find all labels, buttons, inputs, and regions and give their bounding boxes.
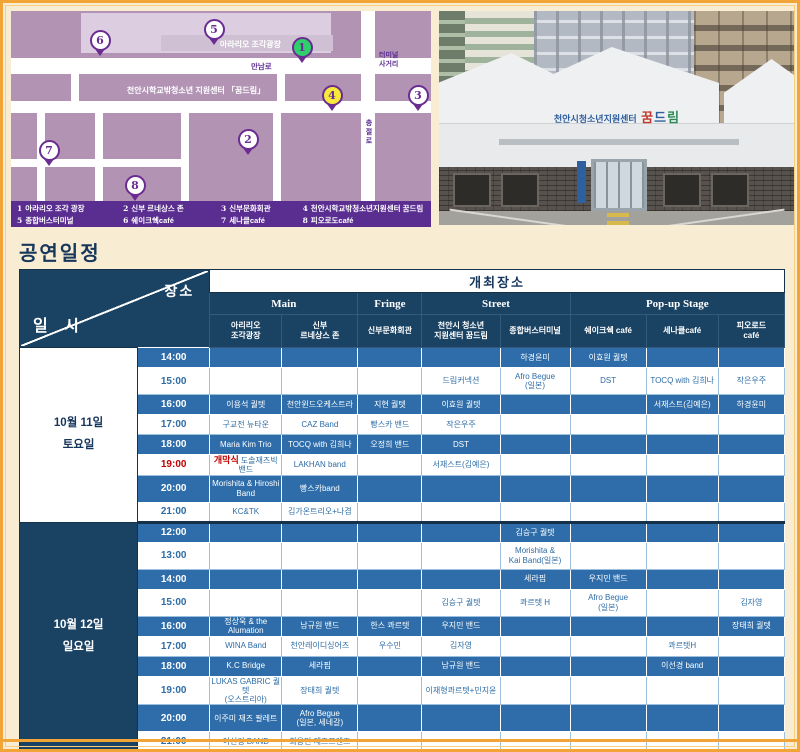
schedule-cell: [718, 502, 784, 522]
table-corner-cell: 장소 일 시: [20, 270, 210, 348]
schedule-cell: 드림커넥션: [422, 368, 500, 395]
map-marker-tail: [95, 49, 105, 61]
schedule-cell: [718, 415, 784, 435]
corner-datetime-label: 일 시: [33, 312, 85, 336]
schedule-cell: [210, 589, 282, 616]
schedule-cell: [500, 415, 570, 435]
schedule-cell: [422, 542, 500, 569]
schedule-cell: 하경윤미: [500, 348, 570, 368]
schedule-cell: [718, 348, 784, 368]
map-marker-number: 1: [292, 37, 313, 58]
schedule-cell: [570, 502, 646, 522]
schedule-cell: [422, 475, 500, 502]
photo-crosswalk: [607, 211, 629, 225]
map-marker-8: 8: [124, 175, 146, 206]
schedule-cell: 우지민 밴드: [570, 569, 646, 589]
time-cell: 20:00: [138, 705, 210, 732]
schedule-cell: 남규원 밴드: [422, 656, 500, 676]
schedule-cell: [646, 542, 718, 569]
map-marker-number: 5: [204, 19, 225, 40]
opening-ceremony-label: 개막식: [214, 455, 239, 465]
time-cell: 19:00: [138, 676, 210, 705]
schedule-cell: [646, 475, 718, 502]
schedule-cell: 오정희 밴드: [358, 435, 422, 455]
time-cell: 18:00: [138, 435, 210, 455]
map-label-mannam-ro: 만남로: [251, 61, 272, 72]
schedule-cell: 정상욱 & the Alumation: [210, 616, 282, 636]
schedule-cell: 김자영: [718, 589, 784, 616]
schedule-cell: [358, 589, 422, 616]
schedule-cell: [570, 636, 646, 656]
schedule-cell: [646, 455, 718, 476]
schedule-cell: [646, 705, 718, 732]
schedule-table: 장소 일 시 개최장소 Main Fringe Street Pop-up St…: [19, 269, 785, 752]
map-marker-tail: [130, 194, 140, 206]
venue-header: 천안시 청소년 지원센터 꿈드림: [422, 315, 500, 348]
schedule-cell: [570, 705, 646, 732]
schedule-cell: [570, 435, 646, 455]
building-sign: 천안시청소년지원센터 꿈드림: [439, 107, 795, 127]
map-marker-tail: [44, 159, 54, 171]
schedule-cell: [210, 569, 282, 589]
group-street: Street: [422, 293, 570, 315]
schedule-cell: [358, 368, 422, 395]
time-cell: 14:00: [138, 348, 210, 368]
schedule-cell: [570, 395, 646, 415]
schedule-cell: [500, 502, 570, 522]
map-label-chungjeol-ro: 충절로: [363, 119, 373, 146]
schedule-cell: CAZ Band: [282, 415, 358, 435]
schedule-cell: Afro Begue (일본, 세네갈): [282, 705, 358, 732]
schedule-cell: 남규원 밴드: [282, 616, 358, 636]
schedule-cell: [570, 415, 646, 435]
schedule-cell: [718, 636, 784, 656]
schedule-cell: [570, 656, 646, 676]
schedule-cell: [358, 502, 422, 522]
schedule-cell: [282, 542, 358, 569]
map-marker-5: 5: [203, 19, 225, 50]
schedule-cell: [646, 569, 718, 589]
schedule-cell: 장태희 퀄텟: [282, 676, 358, 705]
schedule-cell: 콰르텟 H: [500, 589, 570, 616]
map-legend: 1아라리오 조각 광장2신부 르네상스 존3신부문화회관4천안시학교밖청소년지원…: [11, 201, 431, 227]
schedule-cell: [358, 656, 422, 676]
venue-header: 신부 르네상스 존: [282, 315, 358, 348]
schedule-cell: [718, 676, 784, 705]
schedule-cell: [500, 705, 570, 732]
schedule-cell: [210, 348, 282, 368]
time-cell: 12:00: [138, 522, 210, 542]
schedule-cell: TOCQ with 김희나: [282, 435, 358, 455]
schedule-cell: [646, 435, 718, 455]
schedule-cell: 서재스트(김예은): [646, 395, 718, 415]
schedule-cell: [358, 542, 422, 569]
schedule-cell: 한스 콰르텟: [358, 616, 422, 636]
venue-header: 세나클café: [646, 315, 718, 348]
schedule-cell: [646, 415, 718, 435]
map-label-center: 천안시학교밖청소년 지원센터 「꿈드림」: [71, 85, 321, 96]
group-main: Main: [210, 293, 358, 315]
schedule-cell: [500, 656, 570, 676]
venue-header: 아리리오 조각광장: [210, 315, 282, 348]
schedule-cell: 천안윈드오케스트라: [282, 395, 358, 415]
schedule-cell: [422, 705, 500, 732]
schedule-cell: [282, 589, 358, 616]
legend-item-3: 3신부문화회관: [221, 203, 303, 213]
schedule-cell: [358, 455, 422, 476]
map-marker-tail: [209, 38, 219, 50]
schedule-cell: TOCQ with 김희나: [646, 368, 718, 395]
schedule-cell: [500, 475, 570, 502]
schedule-cell: 구교전 뉴타운: [210, 415, 282, 435]
legend-item-6: 6쉐이크쉑café: [123, 215, 221, 225]
schedule-cell: [718, 475, 784, 502]
map-lane: [181, 113, 189, 201]
schedule-cell: 하경윤미: [718, 395, 784, 415]
schedule-cell: K.C Bridge: [210, 656, 282, 676]
schedule-cell: [358, 348, 422, 368]
schedule-cell: 이효원 퀄텟: [570, 348, 646, 368]
schedule-cell: [422, 502, 500, 522]
schedule-cell: [646, 522, 718, 542]
schedule-cell: 우지민 밴드: [422, 616, 500, 636]
map-lane: [11, 159, 181, 167]
schedule-cell: [646, 348, 718, 368]
venue-header: 피오로드 café: [718, 315, 784, 348]
map-marker-6: 6: [89, 30, 111, 61]
schedule-cell: [358, 522, 422, 542]
schedule-cell: WINA Band: [210, 636, 282, 656]
schedule-cell: [646, 676, 718, 705]
map-marker-1: 1: [291, 37, 313, 68]
schedule-cell: [718, 656, 784, 676]
time-cell: 15:00: [138, 589, 210, 616]
day-label-2: 10월 12일 일요일: [20, 522, 138, 752]
schedule-cell: [358, 569, 422, 589]
map-lane: [273, 113, 281, 201]
schedule-cell: 빵스카 밴드: [358, 415, 422, 435]
schedule-cell: 이재형콰르텟+민지윤: [422, 676, 500, 705]
schedule-cell: 콰르텟H: [646, 636, 718, 656]
schedule-cell: Morishita & Kai Band(일본): [500, 542, 570, 569]
schedule-cell: [718, 455, 784, 476]
time-cell: 14:00: [138, 569, 210, 589]
schedule-cell: [358, 676, 422, 705]
time-cell: 17:00: [138, 636, 210, 656]
schedule-cell: [358, 475, 422, 502]
map-marker-3: 3: [407, 85, 429, 116]
map-marker-7: 7: [38, 140, 60, 171]
schedule-cell: DST: [570, 368, 646, 395]
schedule-cell: 개막식도솔재즈빅밴드: [210, 455, 282, 476]
map-marker-4: 4: [321, 85, 343, 116]
frame-border-bottom: [3, 739, 797, 742]
schedule-cell: [500, 616, 570, 636]
time-cell: 15:00: [138, 368, 210, 395]
map-road-vertical: [361, 11, 375, 201]
building-sign-text: 천안시청소년지원센터: [554, 114, 637, 124]
schedule-cell: 빵스카band: [282, 475, 358, 502]
group-popup-stage: Pop-up Stage: [570, 293, 784, 315]
map-marker-tail: [297, 56, 307, 68]
schedule-cell: [500, 435, 570, 455]
schedule-cell: [718, 705, 784, 732]
schedule-cell: 지현 퀄텟: [358, 395, 422, 415]
schedule-cell: 이주미 재즈 팔레트: [210, 705, 282, 732]
schedule-cell: Maria Kim Trio: [210, 435, 282, 455]
time-cell: 19:00: [138, 455, 210, 476]
schedule-cell: [718, 569, 784, 589]
schedule-cell: [282, 569, 358, 589]
schedule-cell: [210, 368, 282, 395]
schedule-cell: LAKHAN band: [282, 455, 358, 476]
schedule-cell: DST: [422, 435, 500, 455]
building-window: [663, 173, 701, 207]
schedule-cell: [422, 522, 500, 542]
schedule-cell: 서재스트(김예은): [422, 455, 500, 476]
schedule-cell: 장태희 퀄텟: [718, 616, 784, 636]
flyer-page: 아라리오 조각광장 만남로 터미널 사거리 천안시학교밖청소년 지원센터 「꿈드…: [0, 0, 800, 752]
schedule-cell: [422, 569, 500, 589]
map-marker-tail: [243, 148, 253, 160]
time-cell: 17:00: [138, 415, 210, 435]
schedule-cell: [570, 542, 646, 569]
schedule-cell: 김자영: [422, 636, 500, 656]
venue-header: 종합버스터미널: [500, 315, 570, 348]
time-cell: 18:00: [138, 656, 210, 676]
schedule-cell: [570, 676, 646, 705]
schedule-cell: 천안레이디싱어즈: [282, 636, 358, 656]
map-marker-number: 7: [39, 140, 60, 161]
schedule-cell: [282, 522, 358, 542]
schedule-cell: [646, 616, 718, 636]
map-marker-2: 2: [237, 129, 259, 160]
schedule-cell: [646, 589, 718, 616]
map-marker-number: 6: [90, 30, 111, 51]
venue-header: 쉐이크쉑 café: [570, 315, 646, 348]
schedule-cell: [500, 455, 570, 476]
schedule-cell: [500, 636, 570, 656]
time-cell: 21:00: [138, 502, 210, 522]
building-window: [501, 173, 539, 207]
venues-banner: 개최장소: [210, 270, 785, 293]
schedule-cell: [358, 705, 422, 732]
building-entrance-door: [591, 159, 647, 211]
schedule-cell: 작은우주: [422, 415, 500, 435]
schedule-cell: [570, 475, 646, 502]
map-marker-tail: [413, 104, 423, 116]
page-title: 공연일정: [19, 237, 101, 266]
schedule-cell: [500, 676, 570, 705]
legend-item-4: 4천안시학교밖청소년지원센터 꿈드림: [303, 203, 425, 213]
schedule-cell: 세라핌: [500, 569, 570, 589]
schedule-cell: 이효원 퀄텟: [422, 395, 500, 415]
schedule-cell: 작은우주: [718, 368, 784, 395]
schedule-cell: [210, 542, 282, 569]
legend-item-1: 1아라리오 조각 광장: [17, 203, 123, 213]
schedule-cell: [422, 348, 500, 368]
schedule-cell: Afro Begue (일본): [500, 368, 570, 395]
building-window: [711, 173, 749, 207]
time-cell: 16:00: [138, 616, 210, 636]
legend-item-8: 8피오로도café: [303, 215, 425, 225]
schedule-cell: 이선경 band: [646, 656, 718, 676]
map-marker-number: 4: [322, 85, 343, 106]
schedule-cell: [646, 502, 718, 522]
schedule-cell: Morishita & Hiroshi Band: [210, 475, 282, 502]
building-door-sign: [577, 161, 586, 203]
venue-header: 신부문화회관: [358, 315, 422, 348]
schedule-cell: [282, 368, 358, 395]
time-cell: 20:00: [138, 475, 210, 502]
map-label-terminal-crossing: 터미널 사거리: [379, 51, 398, 69]
map-marker-tail: [327, 104, 337, 116]
schedule-cell: Afro Begue (일본): [570, 589, 646, 616]
schedule-cell: [718, 435, 784, 455]
legend-item-7: 7세나클café: [221, 215, 303, 225]
group-fringe: Fringe: [358, 293, 422, 315]
schedule-cell: [500, 395, 570, 415]
schedule-cell: KC&TK: [210, 502, 282, 522]
corner-place-label: 장소: [164, 281, 194, 301]
building-canopy: [499, 139, 739, 145]
map-marker-number: 8: [125, 175, 146, 196]
schedule-cell: [282, 348, 358, 368]
venue-photo: 천안시청소년지원센터 꿈드림: [439, 11, 795, 225]
venue-map: 아라리오 조각광장 만남로 터미널 사거리 천안시학교밖청소년 지원센터 「꿈드…: [11, 11, 431, 227]
schedule-cell: 김승구 퀄텟: [422, 589, 500, 616]
schedule-cell: [718, 542, 784, 569]
schedule-cell: [570, 616, 646, 636]
time-cell: 16:00: [138, 395, 210, 415]
schedule-cell: 이용석 퀄텟: [210, 395, 282, 415]
day-label-1: 10월 11일 토요일: [20, 348, 138, 523]
schedule-cell: 김승구 퀄텟: [500, 522, 570, 542]
schedule-cell: 김가온트리오+나겸: [282, 502, 358, 522]
schedule-cell: 우수민: [358, 636, 422, 656]
map-marker-number: 2: [238, 129, 259, 150]
schedule-cell: [718, 522, 784, 542]
schedule-cell: 세라핌: [282, 656, 358, 676]
building-sign-name: 꿈드림: [641, 110, 680, 125]
map-marker-number: 3: [408, 85, 429, 106]
time-cell: 13:00: [138, 542, 210, 569]
schedule-cell: [570, 455, 646, 476]
schedule-cell: [570, 522, 646, 542]
schedule-cell: [210, 522, 282, 542]
building-window: [453, 173, 491, 207]
map-lane: [95, 113, 103, 201]
schedule-cell: LUKAS GABRIC 퀄텟 (오스트리아): [210, 676, 282, 705]
legend-item-5: 5종합버스터미널: [17, 215, 123, 225]
